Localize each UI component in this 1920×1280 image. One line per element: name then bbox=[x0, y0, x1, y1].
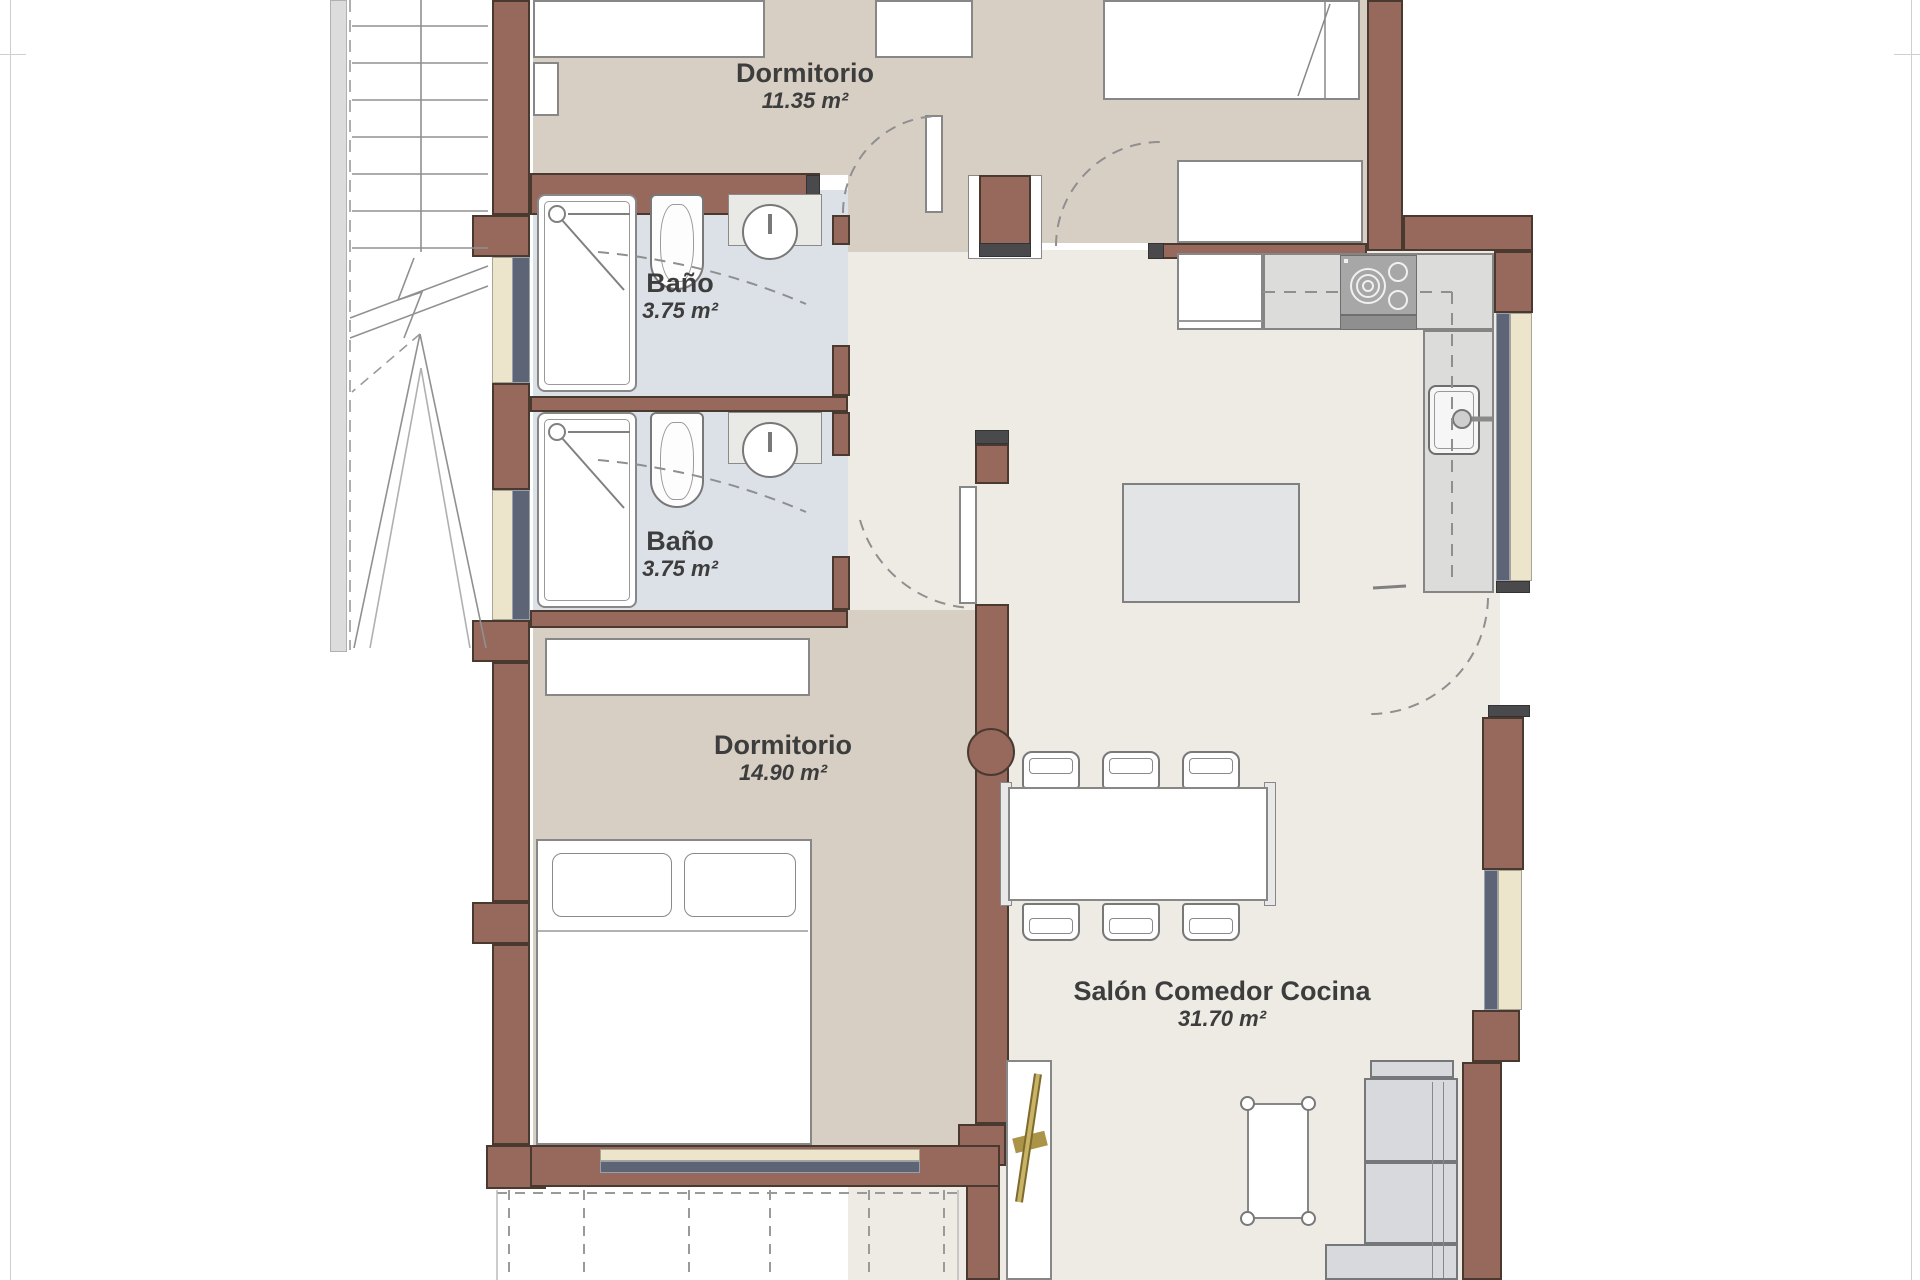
closet-bedroom-2 bbox=[545, 638, 810, 696]
window-sill bbox=[492, 257, 514, 383]
wall-segment bbox=[832, 345, 850, 396]
coffee-table bbox=[1247, 1103, 1309, 1219]
room-area: 14.90 m² bbox=[618, 761, 948, 786]
room-label-dormitorio-2: Dormitorio 14.90 m² bbox=[618, 730, 948, 786]
coffee-table-leg bbox=[1301, 1096, 1316, 1111]
nightstand bbox=[533, 62, 559, 116]
wall-bath-divider bbox=[530, 396, 848, 412]
room-label-salon: Salón Comedor Cocina 31.70 m² bbox=[1048, 976, 1396, 1032]
wall-segment bbox=[979, 175, 1031, 245]
dining-chair bbox=[1102, 903, 1160, 941]
window-sill bbox=[1498, 870, 1522, 1010]
wall-segment bbox=[1367, 0, 1403, 251]
wall-segment bbox=[492, 383, 530, 490]
dining-chair bbox=[1102, 751, 1160, 789]
dining-table bbox=[1008, 787, 1268, 901]
wall-segment bbox=[1472, 1010, 1520, 1062]
wall-corner bbox=[1494, 251, 1533, 313]
floor-hall bbox=[848, 175, 975, 252]
window-sill bbox=[492, 490, 514, 620]
page-frame-tick-left bbox=[0, 54, 26, 55]
coffee-table-leg bbox=[1240, 1211, 1255, 1226]
bed-top-right bbox=[1103, 0, 1360, 100]
kitchen-counter-right bbox=[1423, 330, 1494, 593]
room-area: 11.35 m² bbox=[640, 89, 970, 114]
room-name: Baño bbox=[600, 268, 760, 298]
washbasin-2 bbox=[742, 422, 798, 478]
oven-front bbox=[1340, 315, 1417, 330]
wall-segment bbox=[1403, 215, 1533, 251]
window-glass bbox=[512, 257, 530, 383]
stove-cooktop bbox=[1340, 255, 1417, 315]
washbasin-1 bbox=[742, 204, 798, 260]
floor-plan-canvas: Dormitorio 11.35 m² Baño 3.75 m² Baño 3.… bbox=[0, 0, 1920, 1280]
stairwell-side-strip bbox=[330, 0, 347, 652]
window-sill bbox=[1510, 313, 1532, 581]
wall-segment bbox=[832, 215, 850, 245]
kitchen-island bbox=[1122, 483, 1300, 603]
stairs bbox=[350, 0, 488, 650]
wall-segment bbox=[492, 662, 530, 902]
wall-segment bbox=[975, 444, 1009, 484]
wall-end-cap bbox=[1496, 581, 1530, 593]
structural-column bbox=[967, 728, 1015, 776]
sofa-armrest bbox=[1370, 1060, 1454, 1078]
room-name: Baño bbox=[600, 526, 760, 556]
window-glass bbox=[512, 490, 530, 620]
pillow bbox=[684, 853, 796, 917]
wall-pier bbox=[472, 215, 530, 257]
room-label-dormitorio-1: Dormitorio 11.35 m² bbox=[640, 58, 970, 114]
page-frame-tick-right bbox=[1894, 54, 1920, 55]
wall-segment bbox=[832, 556, 850, 610]
room-area: 31.70 m² bbox=[1048, 1007, 1396, 1032]
wall-end-cap bbox=[1488, 705, 1530, 717]
room-name: Salón Comedor Cocina bbox=[1048, 976, 1396, 1006]
wall-pier bbox=[472, 902, 530, 944]
room-name: Dormitorio bbox=[640, 58, 970, 88]
coffee-table-leg bbox=[1240, 1096, 1255, 1111]
dining-chair bbox=[1182, 751, 1240, 789]
dining-chair bbox=[1022, 751, 1080, 789]
window-glass bbox=[1484, 870, 1498, 1010]
sofa-back-line bbox=[1432, 1082, 1444, 1278]
room-name: Dormitorio bbox=[618, 730, 948, 760]
page-frame-line-left bbox=[10, 0, 11, 1280]
window-sill bbox=[600, 1149, 920, 1161]
wall-segment bbox=[492, 0, 530, 215]
window-glass bbox=[600, 1161, 920, 1173]
room-area: 3.75 m² bbox=[600, 299, 760, 324]
window-glass bbox=[1496, 313, 1510, 581]
door-leaf-bedroom-2 bbox=[959, 486, 977, 604]
fridge-cabinet bbox=[1177, 253, 1263, 330]
wall-segment bbox=[492, 944, 530, 1145]
door-leaf-bedroom-1 bbox=[925, 115, 943, 213]
room-label-bano-2: Baño 3.75 m² bbox=[600, 526, 760, 582]
coffee-table-leg bbox=[1301, 1211, 1316, 1226]
wall-segment bbox=[1462, 1062, 1502, 1280]
dining-chair bbox=[1022, 903, 1080, 941]
room-area: 3.75 m² bbox=[600, 557, 760, 582]
wall-segment bbox=[832, 412, 850, 456]
room-label-bano-1: Baño 3.75 m² bbox=[600, 268, 760, 324]
pillow bbox=[552, 853, 672, 917]
wall-pier bbox=[1482, 717, 1524, 870]
built-in-wardrobe bbox=[1177, 160, 1363, 243]
dining-chair bbox=[1182, 903, 1240, 941]
kitchen-sink bbox=[1428, 385, 1480, 455]
wall-pier bbox=[472, 620, 530, 662]
wall-end-cap bbox=[979, 243, 1031, 257]
wall-end-cap bbox=[975, 430, 1009, 444]
page-frame-line-right bbox=[1911, 0, 1912, 1280]
wall-bath2-bottom bbox=[530, 610, 848, 628]
dresser bbox=[875, 0, 973, 58]
toilet-2 bbox=[650, 412, 704, 508]
wall-end-cap bbox=[1148, 243, 1164, 259]
bed-1 bbox=[533, 0, 765, 58]
entry-door-leaf bbox=[1006, 1060, 1052, 1280]
